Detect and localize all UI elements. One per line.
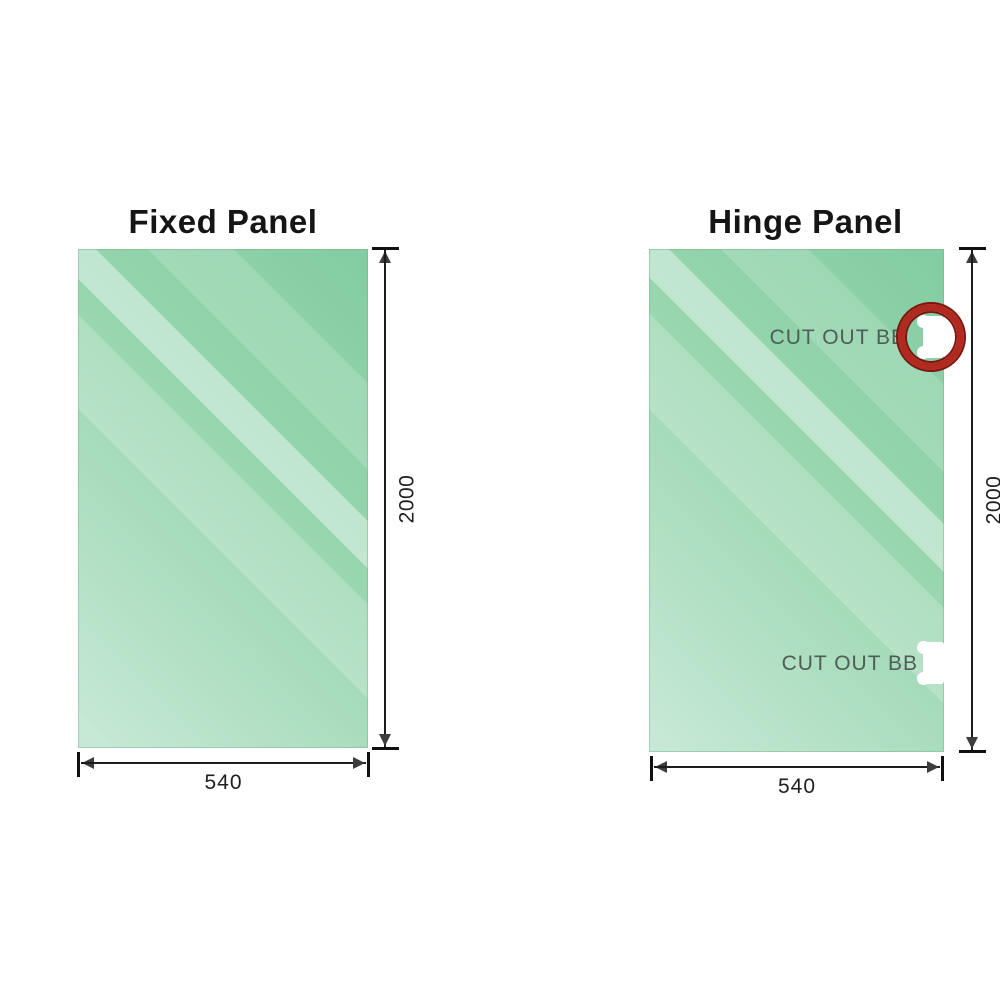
- panel-dimension-diagram: Fixed Panel 2000 540 Hinge Panel CUT OUT…: [0, 0, 1000, 1000]
- hinge-panel-width-label: 540: [651, 775, 943, 799]
- dimension-line: [81, 762, 366, 764]
- hinge-panel-height-dimension: 2000: [971, 247, 973, 753]
- cutout-lobe: [917, 672, 930, 685]
- fixed-panel-title: Fixed Panel: [78, 203, 368, 241]
- highlight-circle-icon: [898, 304, 964, 370]
- fixed-panel-glass: [78, 249, 368, 748]
- hinge-panel-height-label: 2000: [982, 476, 1000, 525]
- fixed-panel-width-dimension: 540: [78, 762, 369, 764]
- arrow-right-icon: [353, 757, 365, 769]
- hinge-cutout-bottom: [916, 640, 944, 686]
- dimension-cap: [959, 750, 986, 753]
- dimension-cap: [372, 747, 399, 750]
- arrow-down-icon: [379, 734, 391, 746]
- hinge-panel-width-dimension: 540: [651, 766, 943, 768]
- arrow-right-icon: [927, 761, 939, 773]
- hinge-panel-title: Hinge Panel: [658, 203, 953, 241]
- fixed-panel-width-label: 540: [78, 771, 369, 795]
- cutout-top-label: CUT OUT BB: [736, 326, 906, 350]
- cutout-bottom-label: CUT OUT BB: [748, 652, 918, 676]
- arrow-down-icon: [966, 737, 978, 749]
- dimension-line: [384, 250, 386, 747]
- cutout-lobe: [917, 641, 930, 654]
- fixed-panel-height-label: 2000: [395, 474, 419, 523]
- dimension-line: [654, 766, 940, 768]
- fixed-panel-height-dimension: 2000: [384, 247, 386, 750]
- dimension-line: [971, 250, 973, 750]
